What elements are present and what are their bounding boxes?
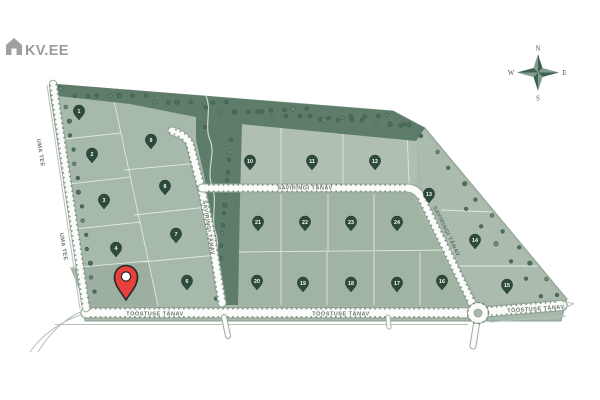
compass-south-label: S [536, 96, 540, 103]
tree-icon [399, 124, 403, 128]
tree-icon [202, 102, 206, 106]
tree-icon [67, 119, 71, 123]
tree-icon [88, 261, 92, 265]
tree-icon [144, 94, 148, 98]
plot-number: 21 [255, 220, 261, 226]
tree-icon [189, 101, 193, 105]
tree-icon [226, 171, 230, 175]
tree-icon [175, 100, 179, 104]
tree-icon [256, 110, 260, 114]
tree-icon [524, 277, 528, 281]
tree-icon [203, 125, 207, 129]
tree-icon [222, 211, 226, 215]
tree-icon [84, 233, 88, 237]
tree-icon [232, 110, 236, 114]
tree-icon [72, 148, 76, 152]
plot-number: 13 [426, 192, 432, 198]
street-label-saviringi-horizontal: SAVIRINGI TÄNAV [277, 185, 332, 192]
tree-icon [109, 94, 113, 98]
tree-icon [219, 244, 223, 248]
compass-east-label: E [562, 70, 566, 77]
compass-rose: N S W E [508, 46, 567, 103]
road-toostuse-tanav [30, 302, 574, 353]
tree-icon [76, 190, 80, 194]
compass-west-label: W [508, 70, 515, 77]
plot-number: 7 [175, 232, 178, 238]
tree-icon [221, 224, 225, 228]
tree-icon [64, 105, 68, 109]
house-icon [6, 38, 22, 55]
plot-number: 3 [103, 198, 106, 204]
tree-icon [350, 118, 354, 122]
street-label-toostuse-middle: TÖÖSTUSE TÄNAV [312, 311, 369, 318]
tree-icon [246, 110, 250, 114]
plot-number: 14 [472, 238, 478, 244]
tree-icon [555, 293, 559, 297]
tree-icon [388, 122, 392, 126]
tree-icon [225, 178, 229, 182]
roundabout [468, 303, 489, 324]
plot-number: 20 [254, 279, 260, 285]
tree-icon [407, 123, 411, 127]
tree-icon [374, 122, 378, 126]
compass-star-icon [517, 54, 559, 91]
tree-icon [89, 276, 93, 280]
tree-icon [72, 162, 76, 166]
street-label-uma-tee-lower: UMA TEE [58, 232, 68, 261]
tree-icon [211, 101, 215, 105]
street-label-toostuse-left: TÖÖSTUSE TÄNAV [126, 311, 183, 318]
tree-icon [86, 94, 90, 98]
plot-number: 2 [91, 152, 94, 158]
tree-icon [218, 110, 222, 114]
tree-icon [436, 150, 440, 154]
tree-icon [419, 134, 423, 138]
plot-number: 9 [150, 138, 153, 144]
tree-icon [322, 118, 326, 122]
plot-number: 6 [186, 279, 189, 285]
tree-icon [204, 106, 208, 110]
tree-icon [117, 93, 121, 97]
tree-icon [68, 134, 72, 138]
tree-icon [509, 260, 513, 264]
tree-icon [474, 198, 478, 202]
tree-icon [227, 158, 231, 162]
tree-icon [305, 107, 309, 111]
tree-icon [59, 87, 63, 91]
tree-icon [363, 115, 367, 119]
site-plan-map: UMA TEEUMA TEESAVIRINGI TÄNAVSAVIRINGI T… [0, 0, 600, 400]
tree-icon [80, 205, 84, 209]
plot-number: 15 [504, 283, 510, 289]
plot-number: 19 [300, 281, 306, 287]
tree-icon [225, 100, 229, 104]
tree-icon [223, 203, 227, 207]
tree-icon [131, 94, 135, 98]
plot-number: 16 [439, 279, 445, 285]
tree-icon [539, 294, 543, 298]
tree-icon [341, 116, 345, 120]
tree-icon [528, 261, 532, 265]
tree-icon [269, 109, 273, 113]
plot-number: 24 [394, 220, 400, 226]
plot-number: 4 [115, 246, 118, 252]
site-plan-page: UMA TEEUMA TEESAVIRINGI TÄNAVSAVIRINGI T… [0, 0, 600, 400]
tree-icon [385, 113, 389, 117]
tree-icon [327, 116, 331, 120]
plot-number: 18 [348, 281, 354, 287]
tree-icon [501, 230, 505, 234]
tree-icon [402, 123, 406, 127]
tree-icon [463, 182, 467, 186]
street-label-uma-tee-upper: UMA TEE [35, 138, 45, 167]
plot-number: 12 [372, 159, 378, 165]
compass-north-label: N [536, 46, 541, 53]
tree-icon [220, 231, 224, 235]
tree-icon [308, 114, 312, 118]
tree-icon [283, 108, 287, 112]
tree-icon [167, 101, 171, 105]
plot-number: 10 [247, 159, 253, 165]
tree-icon [228, 150, 232, 154]
tree-icon [284, 114, 288, 118]
plot-number: 17 [394, 281, 400, 287]
kv-ee-logo[interactable]: KV.EE [6, 38, 69, 59]
tree-icon [153, 101, 157, 105]
tree-icon [298, 114, 302, 118]
tree-icon [76, 176, 80, 180]
tree-icon [464, 207, 468, 211]
logo-text: KV.EE [25, 43, 69, 59]
tree-icon [291, 107, 295, 111]
tree-icon [260, 110, 264, 114]
tree-icon [81, 219, 85, 223]
plot-number: 22 [302, 220, 308, 226]
tree-icon [229, 138, 233, 142]
plot-number: 11 [309, 159, 315, 165]
tree-icon [494, 242, 498, 246]
tree-icon [446, 166, 450, 170]
plot-number: 8 [164, 184, 167, 190]
tree-icon [517, 246, 521, 250]
plot-number: 23 [348, 220, 354, 226]
tree-icon [490, 214, 494, 218]
tree-icon [95, 94, 99, 98]
plot-number: 1 [78, 109, 81, 115]
tree-icon [93, 290, 97, 294]
tree-icon [73, 94, 77, 98]
tree-icon [318, 117, 322, 121]
tree-icon [479, 225, 483, 229]
tree-icon [545, 277, 549, 281]
tree-icon [360, 118, 364, 122]
tree-icon [85, 247, 89, 251]
tree-icon [336, 118, 340, 122]
tree-icon [270, 114, 274, 118]
tree-icon [376, 114, 380, 118]
